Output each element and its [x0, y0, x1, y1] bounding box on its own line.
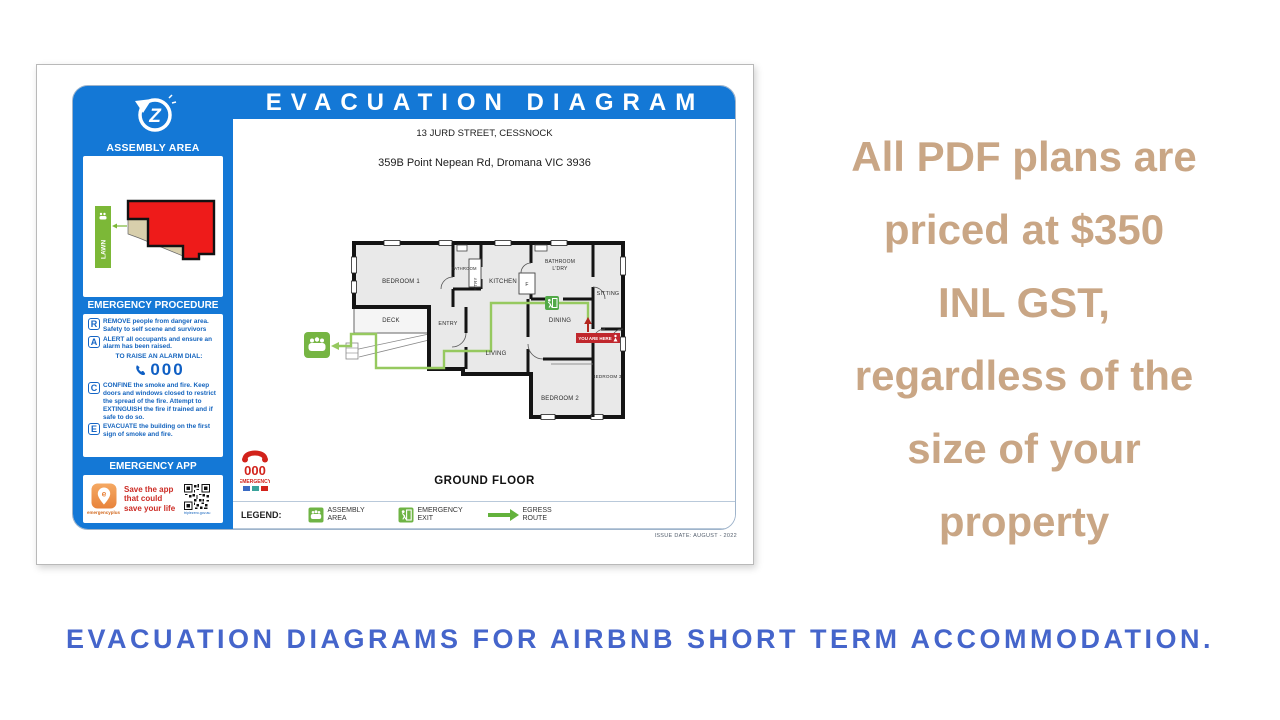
legend-egress-label: EGRESS ROUTE — [523, 507, 567, 523]
legend-exit-label: EMERGENCY EXIT — [418, 507, 462, 523]
legend-label: LEGEND: — [241, 510, 282, 520]
floor-label: GROUND FLOOR — [233, 475, 736, 487]
procedure-text-evacuate: EVACUATE the building on the first sign … — [103, 423, 218, 439]
room-living: LIVING — [486, 351, 507, 357]
alarm-number: 000 — [150, 360, 184, 380]
legend-egress-item: EGRESS ROUTE — [488, 507, 567, 523]
emergency-app-title: EMERGENCY APP — [73, 461, 233, 472]
emergency-plus-app-icon: e — [91, 483, 117, 509]
procedure-text-remove: REMOVE people from danger area. Safety t… — [103, 318, 218, 334]
footer-headline: EVACUATION DIAGRAMS FOR AIRBNB SHORT TER… — [0, 624, 1280, 655]
procedure-alert: A ALERT all occupants and ensure an alar… — [88, 336, 218, 352]
qr-caption: triplezero.gov.au — [184, 511, 210, 515]
procedure-evacuate: E EVACUATE the building on the first sig… — [88, 423, 218, 439]
logo-icon: Z — [127, 89, 179, 139]
room-bathroom2: BATHROOM — [545, 259, 575, 265]
egress-route-arrowhead — [331, 342, 339, 350]
procedure-text-confine: CONFINE the smoke and fire. Keep doors a… — [103, 382, 218, 421]
lawn-label: LAWN — [101, 240, 108, 259]
app-message: Save the app that could save your life — [124, 485, 180, 513]
document-title: EVACUATION DIAGRAM — [233, 86, 736, 119]
room-sitting: SITTING — [597, 291, 620, 297]
promo-line: size of your — [788, 412, 1260, 485]
procedure-confine: C CONFINE the smoke and fire. Keep doors… — [88, 382, 218, 421]
promo-line: INL GST, — [788, 266, 1260, 339]
promo-line: property — [788, 485, 1260, 558]
qr-code — [184, 484, 210, 510]
procedure-letter-r: R — [88, 318, 100, 330]
legend-exit-icon — [398, 507, 414, 523]
site-address-primary: 13 JURD STREET, CESSNOCK — [233, 128, 736, 139]
room-dining: DINING — [549, 318, 571, 324]
poster: EVACUATION DIAGRAM Z ASSEMBLY AREA — [0, 0, 1280, 720]
legend-assembly-label: ASSEMBLY AREA — [328, 507, 372, 523]
legend-bar: LEGEND: ASSEMBLY AREA — [233, 501, 736, 529]
legend-assembly-item: ASSEMBLY AREA — [308, 507, 372, 523]
company-logo: Z — [73, 89, 233, 144]
room-bedroom3: BEDROOM 3 — [592, 374, 622, 379]
room-bedroom2: BEDROOM 2 — [541, 396, 579, 402]
promo-line: All PDF plans are — [788, 120, 1260, 193]
svg-text:Z: Z — [148, 106, 162, 127]
issue-date: ISSUE DATE: AUGUST - 2022 — [655, 533, 738, 539]
room-kitchen: KITCHEN — [489, 279, 517, 285]
legend-assembly-icon — [308, 507, 324, 523]
svg-text:e: e — [101, 489, 106, 499]
diagram-panel: EVACUATION DIAGRAM Z ASSEMBLY AREA — [72, 85, 736, 530]
emergency-procedure-title: EMERGENCY PROCEDURE — [73, 300, 233, 311]
procedure-letter-c: C — [88, 382, 100, 394]
you-are-here-label: YOU ARE HERE — [578, 336, 611, 341]
emergency-app-box: e emergencyplus Save the app that could … — [83, 475, 223, 523]
map-egress-arrow — [112, 224, 117, 229]
phone-handset-icon — [133, 363, 148, 378]
room-laundry: L'DRY — [552, 266, 568, 272]
emergency-exit-icon — [545, 296, 559, 310]
procedure-remove: R REMOVE people from danger area. Safety… — [88, 318, 218, 334]
triple-zero-badge: 000 EMERGENCY — [240, 449, 270, 502]
room-entry: ENTRY — [438, 321, 457, 327]
triple-zero-graphic: 000 EMERGENCY — [240, 449, 270, 497]
triple-zero-label: EMERGENCY — [240, 479, 270, 485]
room-bedroom1: BEDROOM 1 — [382, 279, 420, 285]
assembly-area-title: ASSEMBLY AREA — [73, 142, 233, 154]
floor-plan-graphic: YOU ARE HERE BEDROOM 1 — [291, 237, 641, 432]
app-store-name: emergencyplus — [87, 510, 120, 515]
assembly-area-icon — [304, 332, 330, 358]
promo-line: regardless of the — [788, 339, 1260, 412]
promo-line: priced at $350 — [788, 193, 1260, 266]
diagram-content: 13 JURD STREET, CESSNOCK 359B Point Nepe… — [233, 119, 736, 530]
legend-egress-arrow-icon — [488, 509, 519, 521]
room-pantry: P'TRY — [473, 278, 478, 291]
assembly-map-graphic: LAWN — [83, 156, 223, 297]
evacuation-document-page: EVACUATION DIAGRAM Z ASSEMBLY AREA — [36, 64, 754, 565]
procedure-letter-e: E — [88, 423, 100, 435]
site-address-secondary: 359B Point Nepean Rd, Dromana VIC 3936 — [233, 157, 736, 169]
procedure-letter-a: A — [88, 336, 100, 348]
alarm-dial-block: TO RAISE AN ALARM DIAL: 000 — [100, 353, 218, 380]
room-deck: DECK — [382, 318, 399, 324]
room-bathroom: BATHROOM — [451, 266, 477, 271]
promo-text: All PDF plans are priced at $350 INL GST… — [788, 120, 1260, 558]
procedure-text-alert: ALERT all occupants and ensure an alarm … — [103, 336, 218, 352]
triple-zero-number: 000 — [244, 463, 266, 478]
floor-plan: YOU ARE HERE BEDROOM 1 — [291, 237, 641, 432]
legend-exit-item: EMERGENCY EXIT — [398, 507, 462, 523]
assembly-area-map: LAWN — [83, 156, 223, 297]
emergency-procedure-box: R REMOVE people from danger area. Safety… — [83, 314, 223, 457]
sidebar: Z ASSEMBLY AREA LAWN — [73, 86, 233, 530]
alarm-dial-label: TO RAISE AN ALARM DIAL: — [100, 353, 218, 360]
room-fridge: F — [525, 282, 528, 288]
